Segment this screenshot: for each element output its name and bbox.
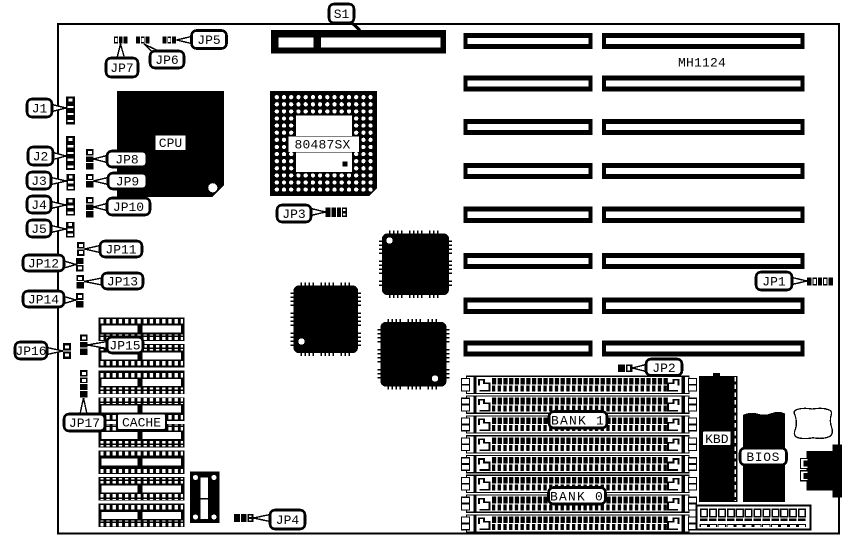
svg-text:JP1: JP1 xyxy=(762,275,786,290)
svg-text:JP5: JP5 xyxy=(197,33,220,48)
svg-text:J2: J2 xyxy=(33,150,49,165)
svg-text:J3: J3 xyxy=(31,174,47,189)
svg-text:CPU: CPU xyxy=(159,136,182,151)
svg-text:JP15: JP15 xyxy=(109,339,140,354)
svg-text:JP14: JP14 xyxy=(28,293,59,308)
svg-text:JP9: JP9 xyxy=(116,175,139,190)
svg-text:80487SX: 80487SX xyxy=(294,137,350,152)
svg-text:KBD: KBD xyxy=(705,432,729,447)
svg-text:JP3: JP3 xyxy=(282,207,305,222)
svg-text:JP4: JP4 xyxy=(276,513,300,528)
svg-text:BANK 0: BANK 0 xyxy=(550,489,604,504)
svg-text:MH1124: MH1124 xyxy=(678,56,726,71)
svg-text:JP17: JP17 xyxy=(69,416,100,431)
svg-text:CACHE: CACHE xyxy=(122,415,161,430)
svg-text:JP16: JP16 xyxy=(15,344,46,359)
svg-text:JP13: JP13 xyxy=(107,275,138,290)
svg-text:JP6: JP6 xyxy=(155,53,178,68)
svg-text:S1: S1 xyxy=(334,7,350,22)
svg-text:J5: J5 xyxy=(31,222,47,237)
svg-text:JP10: JP10 xyxy=(113,200,144,215)
svg-text:J1: J1 xyxy=(32,102,48,117)
svg-text:BIOS: BIOS xyxy=(746,450,780,465)
svg-text:JP11: JP11 xyxy=(105,243,136,258)
svg-text:JP8: JP8 xyxy=(115,153,138,168)
svg-text:BANK 1: BANK 1 xyxy=(551,413,605,428)
svg-text:J4: J4 xyxy=(31,198,47,213)
svg-text:JP2: JP2 xyxy=(652,361,675,376)
svg-text:JP12: JP12 xyxy=(28,257,59,272)
svg-text:JP7: JP7 xyxy=(110,61,133,76)
